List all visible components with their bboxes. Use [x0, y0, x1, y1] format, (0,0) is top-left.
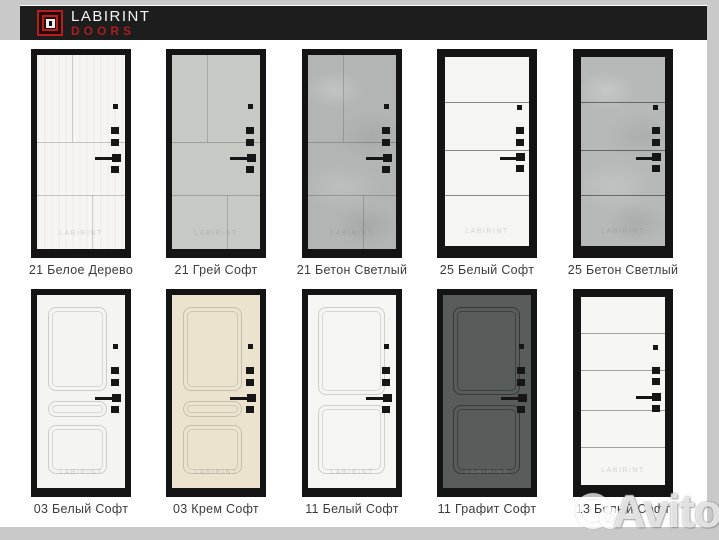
door-hardware [37, 55, 125, 249]
door-frame: LABIRINT [166, 289, 266, 497]
door-card-11-bely-soft: LABIRINT 11 Белый Софт [285, 289, 419, 516]
door-panel: LABIRINT [308, 55, 396, 249]
door-frame: LABIRINT [573, 289, 673, 497]
door-panel: LABIRINT [443, 295, 531, 488]
door-hardware [581, 297, 665, 485]
labirint-logo-inner-square [42, 15, 58, 31]
door-watermark: LABIRINT [37, 230, 125, 237]
door-frame: LABIRINT [166, 49, 266, 258]
door-panel: LABIRINT [37, 295, 125, 488]
door-panel: LABIRINT [172, 55, 260, 249]
door-caption: 11 Графит Софт [438, 502, 537, 516]
keyhole-mark [49, 21, 52, 26]
door-hardware [445, 57, 529, 246]
door-frame: LABIRINT [437, 289, 537, 497]
door-frame: LABIRINT [302, 49, 402, 258]
door-panel: LABIRINT [37, 55, 125, 249]
door-hardware [37, 295, 125, 488]
door-caption: 03 Крем Софт [173, 502, 259, 516]
brand-subname: DOORS [71, 25, 151, 37]
door-hardware [308, 295, 396, 488]
door-caption: 21 Грей Софт [174, 263, 257, 277]
door-card-21-beton-svetly: LABIRINT 21 Бетон Светлый [285, 49, 419, 277]
door-frame: LABIRINT [31, 289, 131, 497]
door-caption: 11 Белый Софт [305, 502, 399, 516]
brand-name: LABIRINT [71, 9, 151, 24]
door-panel: LABIRINT [445, 57, 529, 246]
door-watermark: LABIRINT [37, 469, 125, 476]
avito-watermark: Avito [575, 482, 719, 540]
door-frame: LABIRINT [31, 49, 131, 258]
door-panel: LABIRINT [308, 295, 396, 488]
door-card-25-bely-soft: LABIRINT 25 Белый Софт [420, 49, 554, 277]
door-card-21-grey-soft: LABIRINT 21 Грей Софт [149, 49, 283, 277]
door-card-11-grafit-soft: LABIRINT 11 Графит Софт [420, 289, 554, 516]
header-left-margin [0, 5, 20, 40]
door-watermark: LABIRINT [443, 469, 531, 476]
door-frame: LABIRINT [573, 49, 673, 258]
door-caption: 21 Бетон Светлый [297, 263, 408, 277]
door-hardware [581, 57, 665, 246]
door-frame: LABIRINT [437, 49, 537, 258]
door-hardware [443, 295, 531, 488]
door-card-03-krem-soft: LABIRINT 03 Крем Софт [149, 289, 283, 516]
door-card-03-bely-soft: LABIRINT 03 Белый Софт [14, 289, 148, 516]
door-panel: LABIRINT [172, 295, 260, 488]
brand-header: LABIRINT DOORS [20, 6, 707, 40]
door-watermark: LABIRINT [172, 230, 260, 237]
avito-watermark-text: Avito [613, 484, 719, 538]
door-watermark: LABIRINT [308, 230, 396, 237]
door-watermark: LABIRINT [308, 469, 396, 476]
labirint-keyhole-logo-icon [37, 10, 63, 36]
door-caption: 03 Белый Софт [34, 502, 128, 516]
door-hardware [308, 55, 396, 249]
door-watermark: LABIRINT [445, 228, 529, 235]
door-watermark: LABIRINT [172, 469, 260, 476]
door-caption: 25 Белый Софт [440, 263, 534, 277]
door-card-25-beton-svetly: LABIRINT 25 Бетон Светлый [556, 49, 690, 277]
door-hardware [172, 295, 260, 488]
door-caption: 25 Бетон Светлый [568, 263, 679, 277]
door-frame: LABIRINT [302, 289, 402, 497]
door-caption: 21 Белое Дерево [29, 263, 133, 277]
door-panel: LABIRINT [581, 57, 665, 246]
door-card-21-beloe-derevo: LABIRINT 21 Белое Дерево [14, 49, 148, 277]
brand-wordmark: LABIRINT DOORS [71, 9, 151, 37]
door-panel: LABIRINT [581, 297, 665, 485]
catalog-collage: LABIRINT DOORS LABIRINT 21 Белое Дерево [0, 0, 719, 540]
door-watermark: LABIRINT [581, 467, 665, 474]
door-watermark: LABIRINT [581, 228, 665, 235]
door-hardware [172, 55, 260, 249]
labirint-logo-core [46, 19, 55, 28]
